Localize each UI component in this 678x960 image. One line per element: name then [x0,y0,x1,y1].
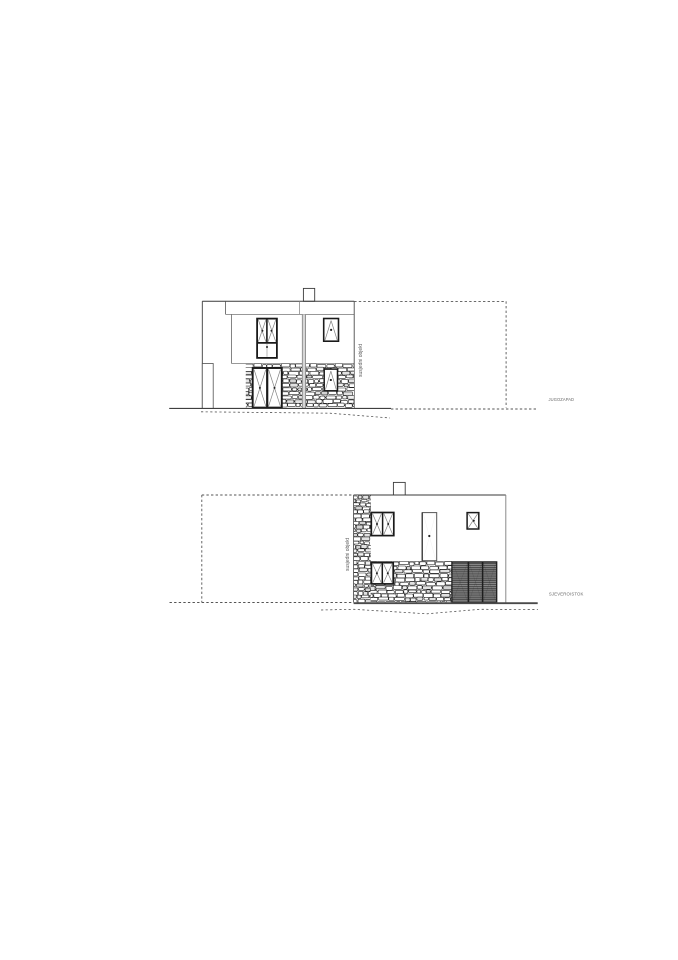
svg-text:SJEVEROISTOK: SJEVEROISTOK [549,592,584,597]
svg-text:susjedni objekt: susjedni objekt [358,343,364,377]
svg-text:JUGOZAPAD: JUGOZAPAD [549,397,575,402]
svg-text:susjedni objekt: susjedni objekt [345,537,351,571]
